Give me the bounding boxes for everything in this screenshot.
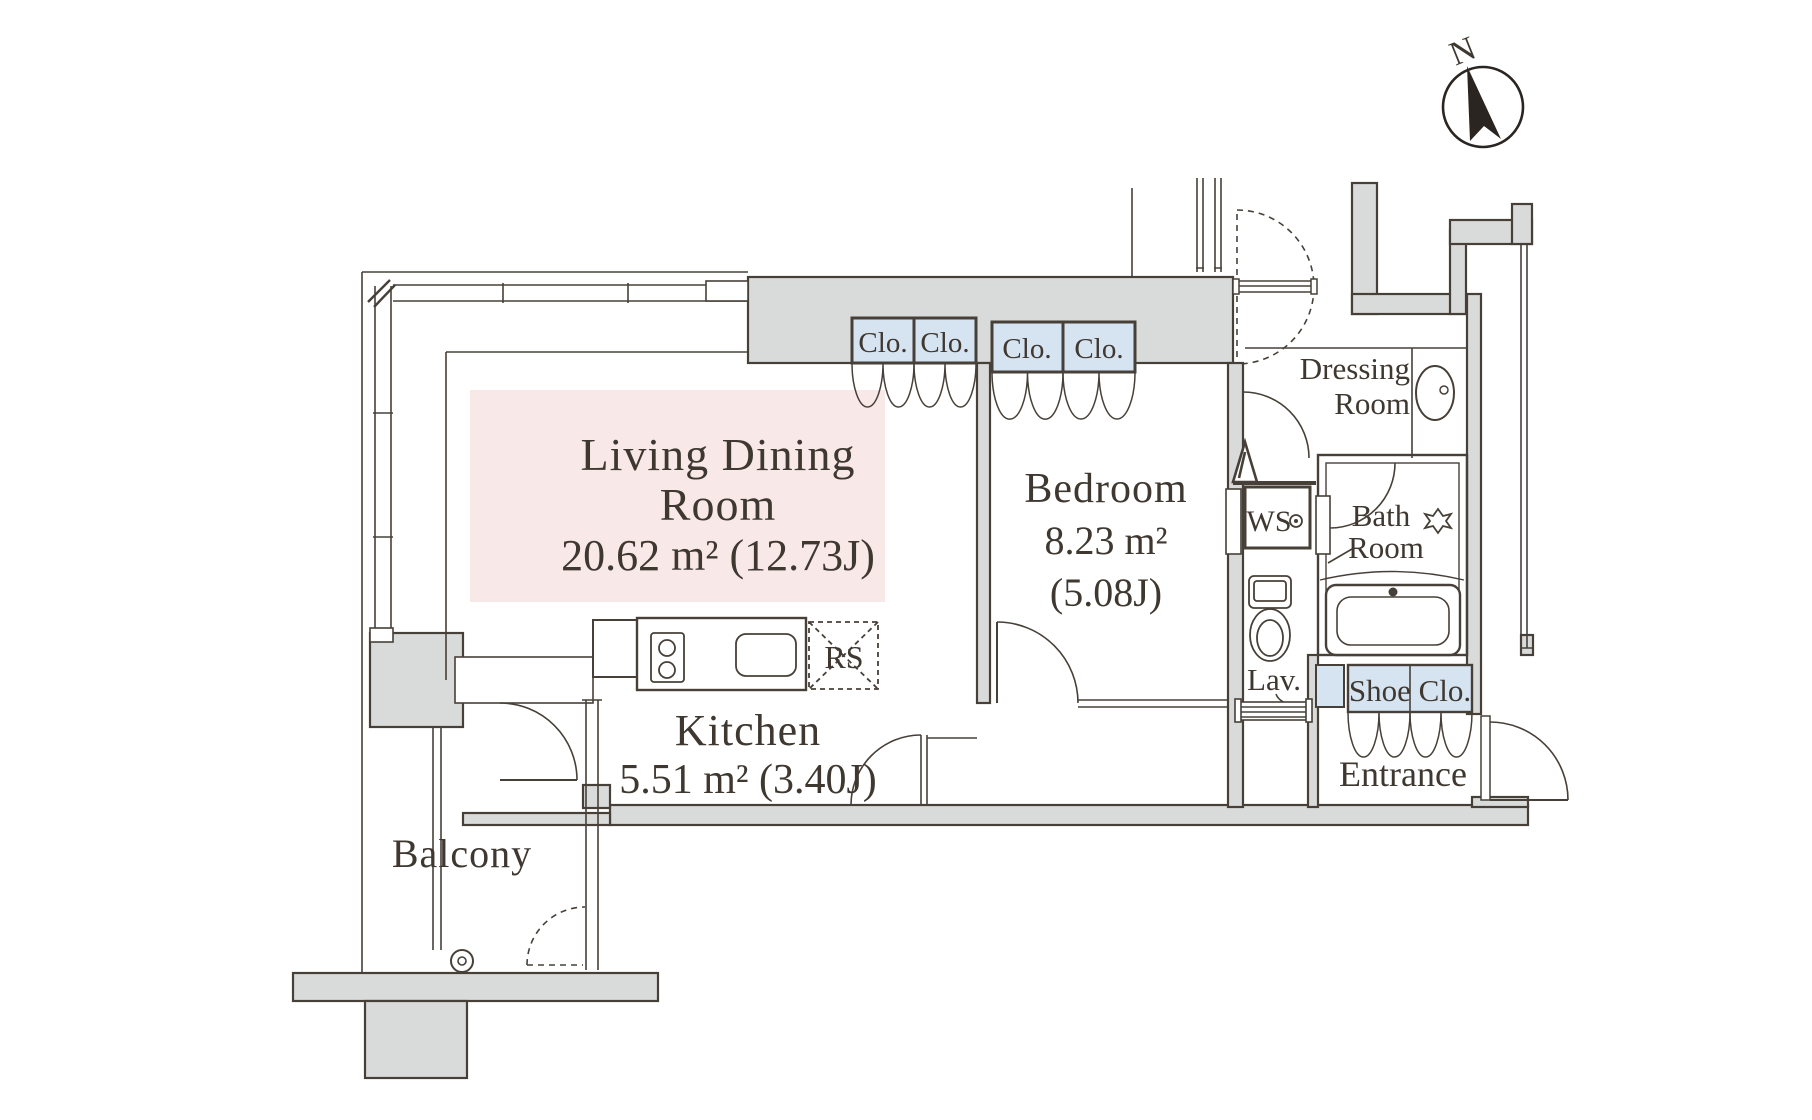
living-dining-area: 20.62 m² (12.73J) xyxy=(561,531,875,580)
dressing-label-1: Dressing xyxy=(1300,351,1410,386)
shoe-closet-side-box xyxy=(1316,665,1344,707)
kitchen-label: Kitchen xyxy=(675,706,821,755)
bedroom-door-arc xyxy=(997,622,1078,703)
living-dining-label-1: Living Dining xyxy=(581,429,856,480)
rs-label: RS xyxy=(824,639,863,675)
dressing-label-2: Room xyxy=(1334,386,1410,421)
wall-kitchen-stub xyxy=(583,785,610,808)
wall-bedroom-left xyxy=(977,363,990,703)
bath-label-1: Bath xyxy=(1352,498,1411,533)
balcony-floor-band xyxy=(293,973,658,1001)
floor-plan-page: N Living Dining Room 20.62 m² (12.73J) K… xyxy=(0,0,1812,1120)
entrance-door xyxy=(1481,716,1568,800)
corridor-double-door xyxy=(1233,210,1317,364)
balcony-drain-icon xyxy=(451,950,473,972)
bath-door-leaf xyxy=(1316,496,1330,554)
balcony-label: Balcony xyxy=(392,831,532,876)
bath-label-2: Room xyxy=(1348,530,1424,565)
wall-left-block xyxy=(370,633,463,727)
floor-plan-svg: N Living Dining Room 20.62 m² (12.73J) K… xyxy=(0,0,1812,1120)
closet-label-c: Clo. xyxy=(1002,333,1051,365)
wall-top-right-stub-v xyxy=(1512,204,1532,244)
entrance-label: Entrance xyxy=(1339,754,1467,794)
balcony-hatch-door xyxy=(527,907,585,965)
bedroom-area-1: 8.23 m² xyxy=(1044,518,1167,563)
shoe-closet-door-fans xyxy=(1348,712,1472,757)
kitchen-area: 5.51 m² (3.40J) xyxy=(619,757,877,803)
closet-label-d: Clo. xyxy=(1074,333,1123,365)
closet-label-b: Clo. xyxy=(920,327,969,359)
north-compass-icon: N xyxy=(1443,30,1523,147)
wall-bath-right xyxy=(1467,294,1481,714)
balcony-kitchen-door xyxy=(500,703,577,780)
kitchen-counter-end xyxy=(593,620,637,677)
bath-glass-wave xyxy=(1320,572,1464,581)
wall-bedroom-right xyxy=(1228,363,1243,807)
living-dining-label-2: Room xyxy=(660,479,776,530)
toilet-icon xyxy=(1249,576,1291,661)
lav-door xyxy=(1235,699,1312,722)
ws-label: WS xyxy=(1247,505,1292,538)
bedroom-label: Bedroom xyxy=(1024,466,1187,512)
wall-bottom xyxy=(610,805,1528,825)
dressing-door-arc xyxy=(1243,392,1309,458)
wash-basin-icon xyxy=(1416,366,1454,420)
wall-bottom-lip xyxy=(463,813,610,825)
shoe-closet-label: Shoe Clo. xyxy=(1349,673,1471,708)
balcony-details xyxy=(451,950,473,972)
bedroom-area-2: (5.08J) xyxy=(1050,570,1162,615)
balcony-pillar xyxy=(365,1001,467,1078)
bath-faucet-icon xyxy=(1425,509,1451,533)
bedroom-closet-pillar xyxy=(1226,489,1241,554)
closet-label-a: Clo. xyxy=(858,327,907,359)
lav-label: Lav. xyxy=(1247,662,1301,697)
bathtub-icon xyxy=(1326,585,1460,655)
